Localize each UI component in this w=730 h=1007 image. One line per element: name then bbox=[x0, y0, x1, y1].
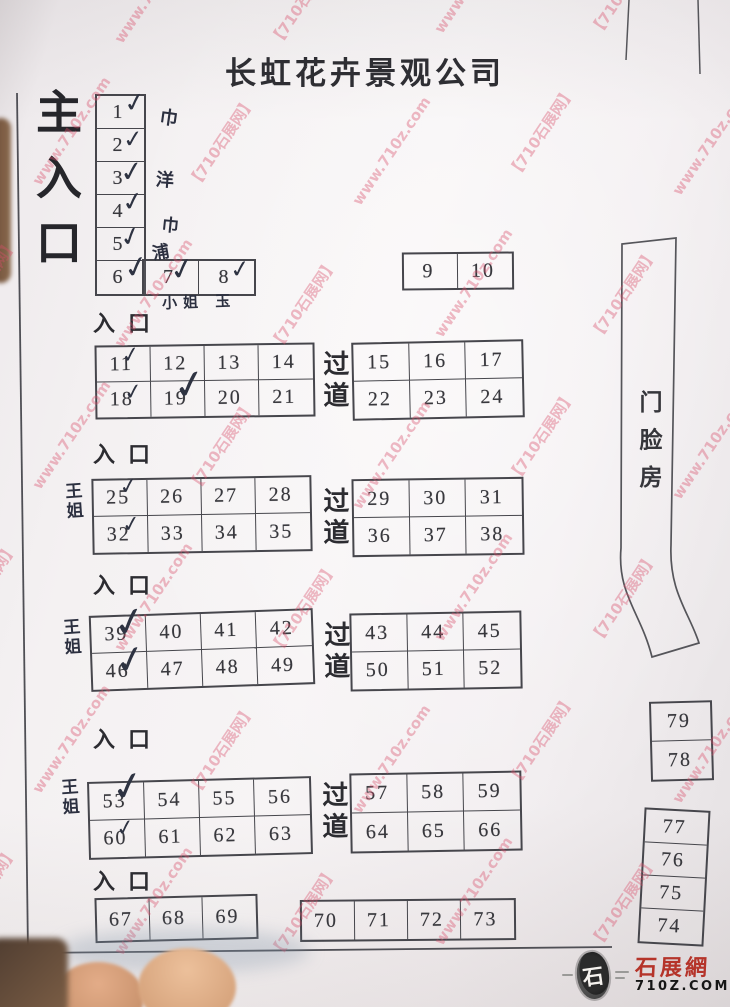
booth-25: 25✓ bbox=[93, 480, 148, 517]
handwritten-note-beside-1: 巾 bbox=[158, 103, 179, 131]
booth-number: 42 bbox=[269, 617, 294, 641]
booth-number: 60 bbox=[103, 827, 128, 851]
booth-9: 9 bbox=[404, 254, 458, 288]
booth-number: 54 bbox=[157, 788, 182, 812]
booth-27: 27 bbox=[201, 478, 256, 515]
booth-39: 39✓ bbox=[91, 616, 147, 654]
booth-74: 74 bbox=[640, 908, 704, 944]
booth-number: 27 bbox=[214, 484, 238, 507]
booth-number: 77 bbox=[662, 815, 687, 839]
booth-50: 50 bbox=[352, 651, 409, 689]
booth-number: 70 bbox=[314, 909, 338, 932]
booth-63: 63 bbox=[255, 815, 311, 853]
booth-55: 55 bbox=[199, 780, 255, 818]
booth-number: 69 bbox=[215, 905, 240, 929]
booth-16: 16 bbox=[409, 342, 466, 380]
booth-number: 4 bbox=[113, 200, 125, 223]
bottom-left-corner-dark bbox=[0, 938, 68, 1007]
booth-number: 67 bbox=[109, 908, 134, 932]
booth-59: 59 bbox=[463, 773, 520, 812]
booth-20: 20 bbox=[205, 380, 259, 416]
booth-number: 76 bbox=[660, 848, 685, 872]
main-entrance-label: 主入口 bbox=[32, 88, 78, 284]
booth-number: 19 bbox=[164, 387, 188, 410]
booth-53: 53✓ bbox=[89, 782, 145, 820]
booth-number: 32 bbox=[107, 523, 131, 546]
booth-32: 32✓ bbox=[94, 516, 149, 553]
handwritten-check-8: ✓ bbox=[228, 256, 253, 283]
booth-table: 293031363738 bbox=[351, 477, 524, 557]
booth-61: 61 bbox=[145, 818, 201, 856]
booth-46: 46✓ bbox=[92, 652, 148, 690]
booth-table: 7978 bbox=[649, 700, 714, 782]
booth-number: 38 bbox=[480, 523, 504, 546]
booth-10: 10 bbox=[458, 254, 512, 288]
booth-number: 25 bbox=[106, 486, 130, 509]
booth-table: 151617222324 bbox=[351, 339, 525, 421]
booth-number: 7 bbox=[163, 266, 175, 289]
booth-number: 68 bbox=[162, 907, 187, 931]
aisle-label-4: 过道 bbox=[318, 781, 348, 844]
booth-51: 51 bbox=[408, 651, 465, 689]
booth-41: 41 bbox=[201, 612, 257, 650]
handwritten-owner-1: 王姐 bbox=[59, 481, 87, 522]
booth-47: 47 bbox=[147, 650, 203, 688]
booth-18: 18✓ bbox=[97, 382, 151, 418]
booth-77: 77 bbox=[645, 809, 709, 845]
booth-number: 2 bbox=[113, 134, 125, 157]
booth-number: 56 bbox=[268, 785, 293, 809]
booth-table: 910 bbox=[402, 252, 514, 291]
booth-64: 64 bbox=[352, 812, 409, 851]
entrance-label-4: 入口 bbox=[93, 722, 163, 754]
booth-62: 62 bbox=[200, 817, 256, 855]
booth-number: 59 bbox=[477, 780, 501, 803]
aisle-label-2: 过道 bbox=[319, 487, 349, 550]
booth-number: 21 bbox=[272, 386, 296, 409]
booth-number: 61 bbox=[158, 825, 183, 849]
handwritten-owner-2: 王姐 bbox=[57, 617, 85, 658]
booth-12: 12 bbox=[151, 346, 205, 382]
aisle-label-3: 过道 bbox=[320, 621, 350, 684]
booth-79: 79 bbox=[651, 702, 711, 742]
booth-31: 31 bbox=[465, 479, 522, 517]
booth-number: 23 bbox=[424, 387, 448, 410]
booth-2: 2✓ bbox=[97, 129, 144, 162]
booth-number: 66 bbox=[478, 818, 502, 841]
booth-number: 12 bbox=[163, 352, 187, 375]
booth-number: 39 bbox=[104, 623, 129, 647]
booth-number: 75 bbox=[659, 881, 684, 905]
booth-7: 7✓ bbox=[144, 261, 199, 294]
booth-19: 19✓ bbox=[151, 381, 205, 417]
booth-table: 53✓54555660✓616263 bbox=[87, 776, 313, 860]
logo-name: 石展網 bbox=[634, 956, 730, 979]
booth-number: 15 bbox=[367, 350, 391, 373]
booth-11: 11✓ bbox=[97, 347, 151, 383]
site-logo: 石 石展網 710Z.COM bbox=[562, 946, 730, 1004]
logo-dashes-right bbox=[615, 971, 629, 979]
booth-17: 17 bbox=[465, 341, 522, 379]
booth-1: 1✓ bbox=[97, 96, 144, 129]
booth-54: 54 bbox=[144, 781, 200, 819]
booth-6: 6✓ bbox=[97, 261, 144, 294]
booth-75: 75 bbox=[641, 875, 705, 911]
booth-number: 47 bbox=[160, 657, 185, 681]
storefront-label: 门脸房 bbox=[631, 390, 665, 502]
booth-table: 70717273 bbox=[300, 898, 516, 942]
booth-number: 49 bbox=[271, 653, 296, 677]
booth-number: 41 bbox=[214, 619, 239, 643]
booth-number: 55 bbox=[212, 787, 237, 811]
booth-number: 6 bbox=[113, 266, 125, 289]
booth-table: 39✓40414246✓474849 bbox=[89, 608, 316, 692]
booth-24: 24 bbox=[466, 378, 523, 416]
booth-number: 72 bbox=[420, 908, 444, 931]
booth-73: 73 bbox=[461, 900, 514, 938]
booth-number: 57 bbox=[365, 782, 389, 805]
booth-4: 4✓ bbox=[97, 195, 144, 228]
booth-23: 23 bbox=[410, 379, 467, 417]
booth-42: 42 bbox=[256, 610, 312, 648]
booth-number: 62 bbox=[213, 824, 238, 848]
booth-number: 8 bbox=[219, 266, 231, 289]
booth-33: 33 bbox=[148, 515, 203, 552]
booth-number: 26 bbox=[160, 485, 184, 508]
booth-48: 48 bbox=[202, 648, 258, 686]
booth-number: 37 bbox=[424, 524, 448, 547]
booth-number: 33 bbox=[161, 522, 185, 545]
booth-number: 48 bbox=[215, 655, 240, 679]
booth-number: 43 bbox=[365, 621, 389, 644]
handwritten-note-below-7-8: 小姐 玉 bbox=[162, 290, 237, 314]
booth-14: 14 bbox=[259, 344, 313, 380]
booth-66: 66 bbox=[464, 811, 521, 850]
booth-number: 17 bbox=[479, 348, 503, 371]
logo-dash-r2 bbox=[615, 977, 625, 979]
booth-15: 15 bbox=[353, 344, 410, 382]
booth-number: 79 bbox=[667, 710, 692, 734]
booth-37: 37 bbox=[410, 517, 467, 555]
booth-table: 77767574 bbox=[637, 807, 710, 946]
booth-number: 36 bbox=[368, 525, 392, 548]
handwritten-owner-3: 王姐 bbox=[55, 777, 83, 818]
handwritten-check-2: ✓ bbox=[122, 126, 146, 152]
booth-43: 43 bbox=[351, 614, 408, 652]
booth-number: 44 bbox=[421, 620, 445, 643]
booth-30: 30 bbox=[409, 480, 466, 518]
booth-number: 13 bbox=[217, 351, 241, 374]
booth-number: 52 bbox=[478, 657, 502, 680]
booth-71: 71 bbox=[355, 901, 408, 939]
booth-number: 1 bbox=[113, 101, 125, 124]
booth-number: 73 bbox=[473, 908, 497, 931]
booth-number: 9 bbox=[422, 260, 434, 283]
booth-38: 38 bbox=[466, 516, 523, 554]
booth-number: 40 bbox=[159, 621, 184, 645]
booth-number: 14 bbox=[272, 350, 296, 373]
booth-number: 34 bbox=[215, 521, 239, 544]
booth-3: 3✓ bbox=[97, 162, 144, 195]
booth-number: 11 bbox=[109, 353, 133, 376]
handwritten-note-beside-3: 洋 bbox=[155, 165, 175, 192]
booth-number: 71 bbox=[367, 909, 391, 932]
booth-35: 35 bbox=[256, 513, 311, 550]
booth-52: 52 bbox=[464, 650, 521, 688]
booth-number: 30 bbox=[423, 486, 447, 509]
logo-text: 石展網 710Z.COM bbox=[635, 956, 730, 994]
booth-number: 65 bbox=[422, 819, 446, 842]
booth-number: 10 bbox=[471, 259, 495, 282]
booth-number: 50 bbox=[366, 659, 390, 682]
booth-44: 44 bbox=[407, 614, 464, 652]
booth-number: 20 bbox=[218, 386, 242, 409]
booth-number: 28 bbox=[268, 483, 292, 506]
booth-number: 16 bbox=[423, 349, 447, 372]
booth-table: 575859646566 bbox=[349, 771, 522, 854]
aisle-label-1: 过道 bbox=[319, 350, 349, 413]
booth-number: 45 bbox=[477, 619, 501, 642]
booth-table: 25✓26272832✓333435 bbox=[91, 475, 312, 555]
booth-number: 53 bbox=[102, 789, 127, 813]
entrance-label-1: 入口 bbox=[93, 306, 163, 338]
booth-number: 5 bbox=[113, 233, 125, 256]
handwritten-note-beside-4: 巾 bbox=[161, 210, 181, 237]
left-boundary-line bbox=[17, 93, 28, 953]
page-title: 长虹花卉景观公司 bbox=[0, 48, 730, 93]
booth-56: 56 bbox=[254, 778, 310, 816]
booth-60: 60✓ bbox=[90, 819, 146, 857]
booth-table: 1✓2✓3✓4✓5✓6✓ bbox=[95, 94, 146, 296]
booth-40: 40 bbox=[146, 614, 202, 652]
booth-70: 70 bbox=[302, 901, 355, 939]
booth-number: 22 bbox=[368, 388, 392, 411]
booth-number: 31 bbox=[480, 486, 504, 509]
booth-21: 21 bbox=[259, 379, 313, 415]
booth-5: 5✓ bbox=[97, 228, 144, 261]
booth-number: 35 bbox=[269, 520, 293, 543]
booth-number: 46 bbox=[105, 659, 130, 683]
booth-table: 11✓12131418✓19✓2021 bbox=[94, 342, 315, 419]
booth-28: 28 bbox=[255, 477, 310, 514]
booth-72: 72 bbox=[408, 901, 461, 939]
booth-number: 74 bbox=[657, 914, 682, 938]
booth-34: 34 bbox=[202, 514, 257, 551]
booth-number: 78 bbox=[668, 748, 693, 772]
booth-57: 57 bbox=[351, 774, 408, 813]
booth-number: 58 bbox=[421, 781, 445, 804]
booth-76: 76 bbox=[643, 842, 707, 878]
booth-number: 18 bbox=[110, 388, 134, 411]
seal-glyph: 石 bbox=[581, 959, 606, 992]
booth-45: 45 bbox=[463, 613, 520, 651]
booth-22: 22 bbox=[354, 381, 411, 419]
booth-number: 63 bbox=[269, 823, 294, 847]
logo-dash-r1 bbox=[615, 971, 629, 973]
entrance-label-2: 入口 bbox=[93, 437, 163, 469]
entrance-label-5: 入口 bbox=[93, 864, 163, 896]
logo-domain: 710Z.COM bbox=[635, 979, 730, 994]
booth-65: 65 bbox=[408, 812, 465, 851]
booth-78: 78 bbox=[652, 740, 712, 780]
booth-number: 51 bbox=[422, 658, 446, 681]
booth-29: 29 bbox=[353, 480, 410, 518]
booth-36: 36 bbox=[354, 517, 411, 555]
booth-table: 434445505152 bbox=[349, 611, 522, 692]
seal-icon: 石 bbox=[574, 950, 612, 1001]
booth-number: 29 bbox=[367, 487, 391, 510]
booth-49: 49 bbox=[257, 646, 313, 684]
booth-number: 3 bbox=[113, 167, 125, 190]
booth-26: 26 bbox=[147, 479, 202, 516]
entrance-label-3: 入口 bbox=[93, 568, 163, 600]
photographed-booth-map: 长虹花卉景观公司 主入口 入口 入口 入口 入口 入口 过道 过道 过道 过道 … bbox=[0, 0, 730, 1007]
booth-58: 58 bbox=[407, 774, 464, 813]
booth-13: 13 bbox=[205, 345, 259, 381]
logo-dash-left bbox=[562, 974, 573, 976]
booth-number: 24 bbox=[480, 386, 504, 409]
booth-number: 64 bbox=[366, 820, 390, 843]
